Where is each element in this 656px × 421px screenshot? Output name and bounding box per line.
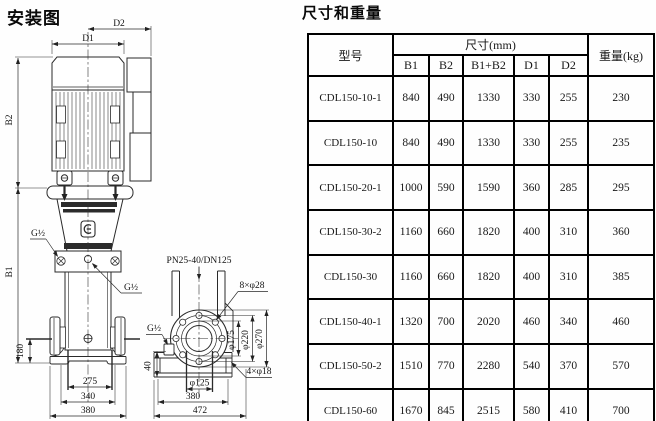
label-base-bolts: 4×φ18 [246, 367, 271, 377]
cell-b1b2: 1820 [463, 210, 514, 255]
label-g-thread-3: G½ [147, 323, 161, 334]
header-model: 型号 [308, 34, 393, 76]
label-dim-340: 340 [81, 392, 96, 402]
label-dim-40: 40 [144, 361, 154, 371]
cell-d2: 310 [549, 255, 588, 300]
cell-d2: 410 [549, 389, 588, 421]
header-row-1: 型号 尺寸(mm) 重量(kg) [308, 34, 654, 55]
cell-b2: 660 [429, 255, 463, 300]
header-b1: B1 [393, 55, 429, 76]
cell-model: CDL150-50-2 [308, 344, 393, 389]
coupling-lantern [57, 199, 123, 251]
cell-d1: 540 [514, 344, 549, 389]
label-flange-spec: PN25-40/DN125 [167, 256, 232, 266]
label-dia-125: φ125 [190, 379, 210, 389]
cell-model: CDL150-60 [308, 389, 393, 421]
cell-d2: 370 [549, 344, 588, 389]
cell-d2: 310 [549, 210, 588, 255]
cell-model: CDL150-40-1 [308, 299, 393, 344]
drain-port [164, 344, 174, 355]
cell-b1: 1160 [393, 255, 429, 300]
cell-weight: 235 [588, 121, 654, 166]
cell-weight: 360 [588, 210, 654, 255]
cell-model: CDL150-10 [308, 121, 393, 166]
cell-b1: 840 [393, 121, 429, 166]
cell-d2: 285 [549, 165, 588, 210]
cell-model: CDL150-10-1 [308, 76, 393, 121]
table-row: CDL150-10-1 840 490 1330 330 255 230 [308, 76, 654, 121]
label-dim-180: 180 [16, 344, 26, 359]
pump-front-view [15, 26, 151, 419]
label-b2: B2 [5, 114, 15, 125]
table-row: CDL150-50-2 1510 770 2280 540 370 570 [308, 344, 654, 389]
cell-d2: 340 [549, 299, 588, 344]
label-d1: D1 [82, 34, 94, 44]
header-b2: B2 [429, 55, 463, 76]
cell-b1: 1320 [393, 299, 429, 344]
cell-model: CDL150-20-1 [308, 165, 393, 210]
header-b1b2: B1+B2 [463, 55, 514, 76]
cell-b1b2: 1820 [463, 255, 514, 300]
cell-weight: 385 [588, 255, 654, 300]
cell-d1: 330 [514, 121, 549, 166]
label-b1: B1 [5, 266, 15, 277]
cell-d1: 400 [514, 210, 549, 255]
label-dim-380-front: 380 [81, 406, 96, 416]
dimensions-table: 型号 尺寸(mm) 重量(kg) B1 B2 B1+B2 D1 D2 CDL15… [307, 33, 655, 421]
cell-b2: 845 [429, 389, 463, 421]
cell-d1: 460 [514, 299, 549, 344]
terminal-box [127, 58, 151, 181]
label-g-thread-1: G½ [31, 228, 45, 239]
header-d2: D2 [549, 55, 588, 76]
table-row: CDL150-30-2 1160 660 1820 400 310 360 [308, 210, 654, 255]
cell-b1: 1000 [393, 165, 429, 210]
label-dia-220: φ220 [241, 330, 251, 350]
cell-b2: 770 [429, 344, 463, 389]
table-title: 尺寸和重量 [302, 2, 382, 23]
catalog-page: 安装图 尺寸和重量 [0, 0, 656, 421]
motor-stool-plate [47, 186, 133, 199]
header-weight: 重量(kg) [588, 34, 654, 76]
table-body: CDL150-10-1 840 490 1330 330 255 230 CDL… [308, 76, 654, 421]
label-dim-275: 275 [83, 377, 98, 387]
cell-b1b2: 2020 [463, 299, 514, 344]
cell-d1: 580 [514, 389, 549, 421]
cell-weight: 230 [588, 76, 654, 121]
table-row: CDL150-40-1 1320 700 2020 460 340 460 [308, 299, 654, 344]
table-row: CDL150-60 1670 845 2515 580 410 700 [308, 389, 654, 421]
label-g-thread-2: G½ [124, 282, 138, 293]
cell-d1: 330 [514, 76, 549, 121]
cell-b2: 590 [429, 165, 463, 210]
cell-model: CDL150-30-2 [308, 210, 393, 255]
cell-d2: 255 [549, 76, 588, 121]
label-flange-bolts: 8×φ28 [239, 281, 264, 291]
cell-b1b2: 2515 [463, 389, 514, 421]
table-row: CDL150-20-1 1000 590 1590 360 285 295 [308, 165, 654, 210]
cell-weight: 700 [588, 389, 654, 421]
cell-b1b2: 1330 [463, 76, 514, 121]
cell-b1: 1160 [393, 210, 429, 255]
cell-b2: 490 [429, 76, 463, 121]
cell-model: CDL150-30 [308, 255, 393, 300]
label-dim-380-side: 380 [186, 392, 201, 402]
cell-b1b2: 1330 [463, 121, 514, 166]
cell-d1: 400 [514, 255, 549, 300]
header-size-group: 尺寸(mm) [393, 34, 588, 55]
cell-weight: 295 [588, 165, 654, 210]
cell-b1: 1670 [393, 389, 429, 421]
label-dia-270: φ270 [255, 329, 265, 349]
cell-d1: 360 [514, 165, 549, 210]
cell-b1b2: 1590 [463, 165, 514, 210]
cell-b2: 660 [429, 210, 463, 255]
table-row: CDL150-30 1160 660 1820 400 310 385 [308, 255, 654, 300]
cell-weight: 460 [588, 299, 654, 344]
cell-weight: 570 [588, 344, 654, 389]
cell-b1: 1510 [393, 344, 429, 389]
label-dim-472: 472 [193, 406, 208, 416]
cell-b2: 490 [429, 121, 463, 166]
installation-diagram: D2 D1 B2 B1 G½ G½ 180 275 340 380 PN25-4… [0, 0, 300, 421]
cell-b2: 700 [429, 299, 463, 344]
cell-b1b2: 2280 [463, 344, 514, 389]
label-d2: D2 [113, 19, 125, 29]
label-dia-175: φ175 [227, 330, 237, 350]
cell-b1: 840 [393, 76, 429, 121]
cell-d2: 255 [549, 121, 588, 166]
table-row: CDL150-10 840 490 1330 330 255 235 [308, 121, 654, 166]
header-d1: D1 [514, 55, 549, 76]
